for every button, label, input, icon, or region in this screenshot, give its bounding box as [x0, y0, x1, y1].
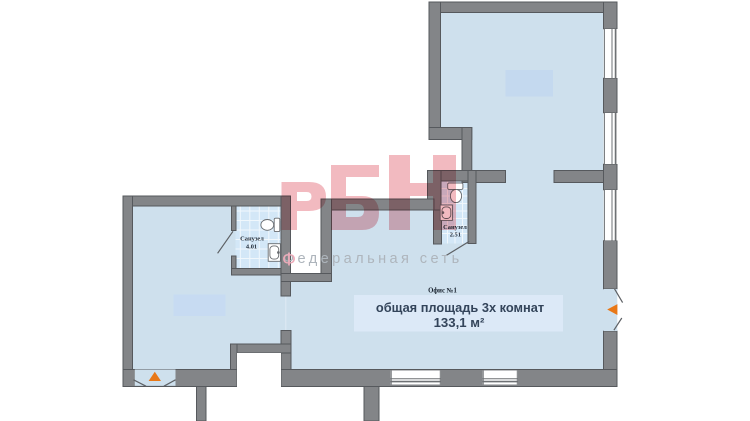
- svg-text:Офис №1: Офис №1: [428, 287, 457, 294]
- svg-text:Федеральная сеть: Федеральная сеть: [283, 251, 463, 267]
- svg-text:133,1 м²: 133,1 м²: [434, 315, 485, 330]
- svg-text:Санузел: Санузел: [240, 236, 264, 243]
- svg-text:2.51: 2.51: [450, 231, 461, 238]
- svg-text:общая площадь 3х комнат: общая площадь 3х комнат: [376, 300, 544, 315]
- svg-text:Ф: Ф: [282, 249, 296, 270]
- svg-text:4.01: 4.01: [246, 244, 257, 251]
